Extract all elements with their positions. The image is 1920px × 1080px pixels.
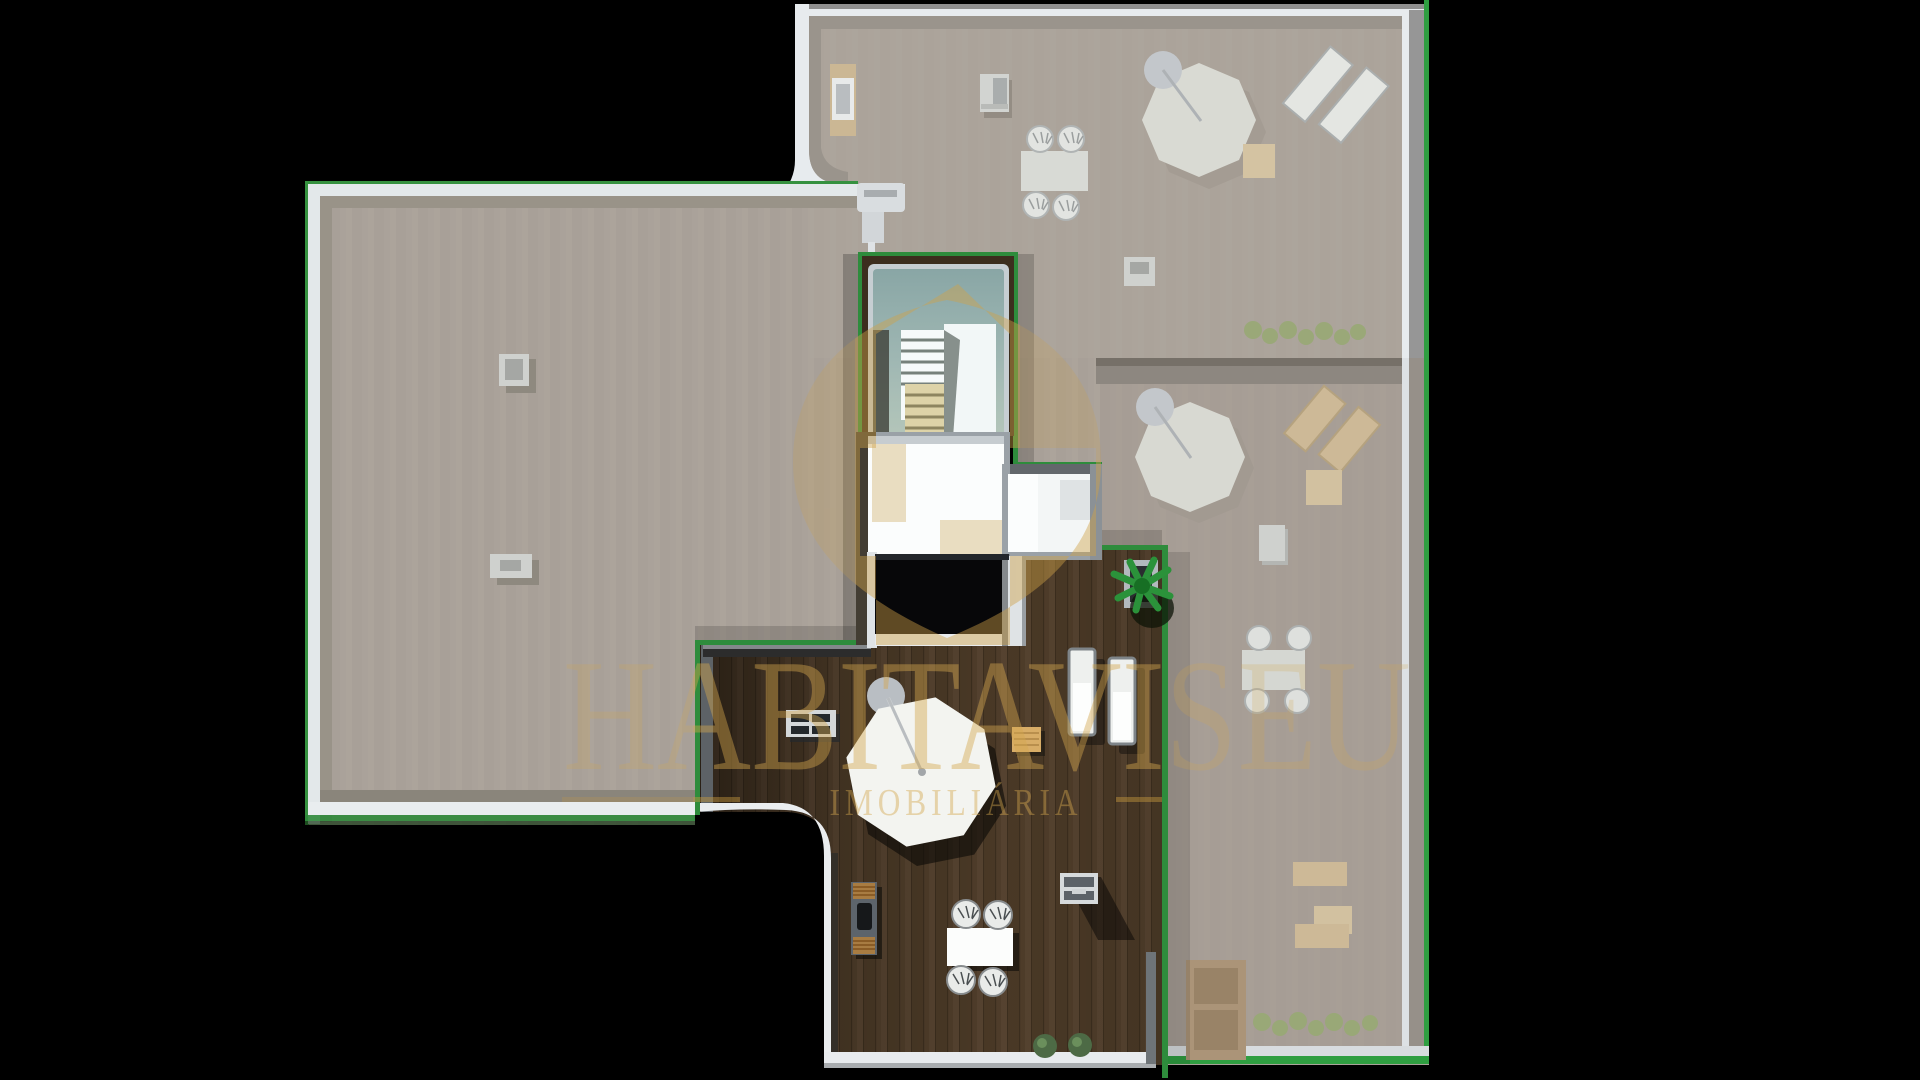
svg-text:IMOBILIÁRIA: IMOBILIÁRIA [830,782,1083,824]
